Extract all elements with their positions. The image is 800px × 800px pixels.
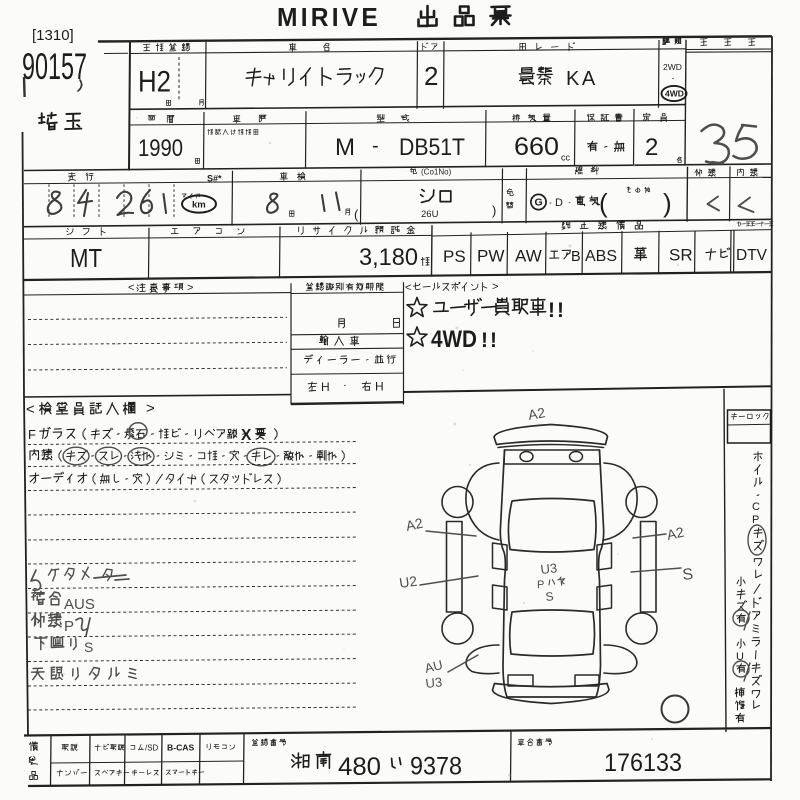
svg-text:PW: PW xyxy=(477,247,504,266)
svg-text:<: < xyxy=(405,282,411,294)
svg-text:P: P xyxy=(64,618,74,635)
svg-text:4WD: 4WD xyxy=(665,89,684,99)
svg-text:9378: 9378 xyxy=(410,753,462,781)
svg-text:F: F xyxy=(28,427,36,442)
svg-text:): ) xyxy=(492,203,496,218)
svg-text:AUS: AUS xyxy=(64,596,95,613)
svg-text:MIRIVE: MIRIVE xyxy=(277,2,381,32)
svg-text:DB51T: DB51T xyxy=(399,134,465,161)
svg-text:D: D xyxy=(555,197,563,209)
svg-text:660: 660 xyxy=(514,133,559,161)
svg-text:!!: !! xyxy=(548,299,566,322)
svg-text:SR: SR xyxy=(669,245,693,264)
svg-text:AW: AW xyxy=(515,246,542,265)
svg-text:H2: H2 xyxy=(138,66,171,99)
svg-text:S: S xyxy=(84,639,93,655)
svg-text:4WD: 4WD xyxy=(431,326,477,353)
svg-text:(: ( xyxy=(599,188,608,218)
svg-text:U2: U2 xyxy=(398,573,418,591)
svg-text:(Co1No): (Co1No) xyxy=(421,168,452,177)
svg-text:2WD: 2WD xyxy=(663,62,682,72)
svg-text:S: S xyxy=(682,566,694,584)
svg-text:S: S xyxy=(545,589,554,604)
svg-text:!!: !! xyxy=(481,329,499,352)
svg-text:>: > xyxy=(146,400,155,417)
svg-text:U3: U3 xyxy=(540,560,558,577)
svg-text:): ) xyxy=(663,188,672,218)
svg-text:DTV: DTV xyxy=(736,247,767,264)
svg-text:26U: 26U xyxy=(421,209,439,220)
svg-text:176133: 176133 xyxy=(604,749,682,777)
svg-text:KA: KA xyxy=(566,68,598,90)
svg-text:M: M xyxy=(335,134,355,161)
svg-text:B: B xyxy=(571,249,581,265)
svg-text:cc: cc xyxy=(561,153,571,163)
svg-text:/SD: /SD xyxy=(145,744,159,753)
svg-text:-: - xyxy=(372,135,379,157)
svg-text:P: P xyxy=(752,514,759,526)
svg-text:A2: A2 xyxy=(527,404,547,423)
svg-text:2: 2 xyxy=(424,61,438,91)
svg-text:>: > xyxy=(187,282,193,294)
svg-text:km: km xyxy=(192,200,206,211)
svg-text:3,180: 3,180 xyxy=(359,244,418,271)
svg-text:[1310]: [1310] xyxy=(32,27,74,44)
svg-text:H: H xyxy=(375,380,384,394)
svg-text:G: G xyxy=(535,197,543,209)
svg-text:>: > xyxy=(492,281,498,293)
svg-text:<: < xyxy=(128,282,134,294)
svg-text:2: 2 xyxy=(645,134,658,161)
svg-text:P: P xyxy=(537,579,544,591)
svg-text:(: ( xyxy=(354,207,359,222)
svg-text:MT: MT xyxy=(70,243,102,273)
svg-text:PS: PS xyxy=(443,247,466,266)
svg-text:ABS: ABS xyxy=(585,248,617,265)
svg-text:C: C xyxy=(752,501,760,513)
svg-text:S#*: S#* xyxy=(207,174,222,184)
svg-text:<: < xyxy=(26,401,35,418)
svg-text:U3: U3 xyxy=(425,674,443,691)
svg-text:480: 480 xyxy=(338,753,381,781)
svg-text:90157: 90157 xyxy=(22,46,87,87)
svg-text:H: H xyxy=(321,380,330,394)
svg-text:X: X xyxy=(241,427,252,444)
svg-text:B-CAS: B-CAS xyxy=(167,743,194,753)
svg-text:1990: 1990 xyxy=(138,135,183,162)
